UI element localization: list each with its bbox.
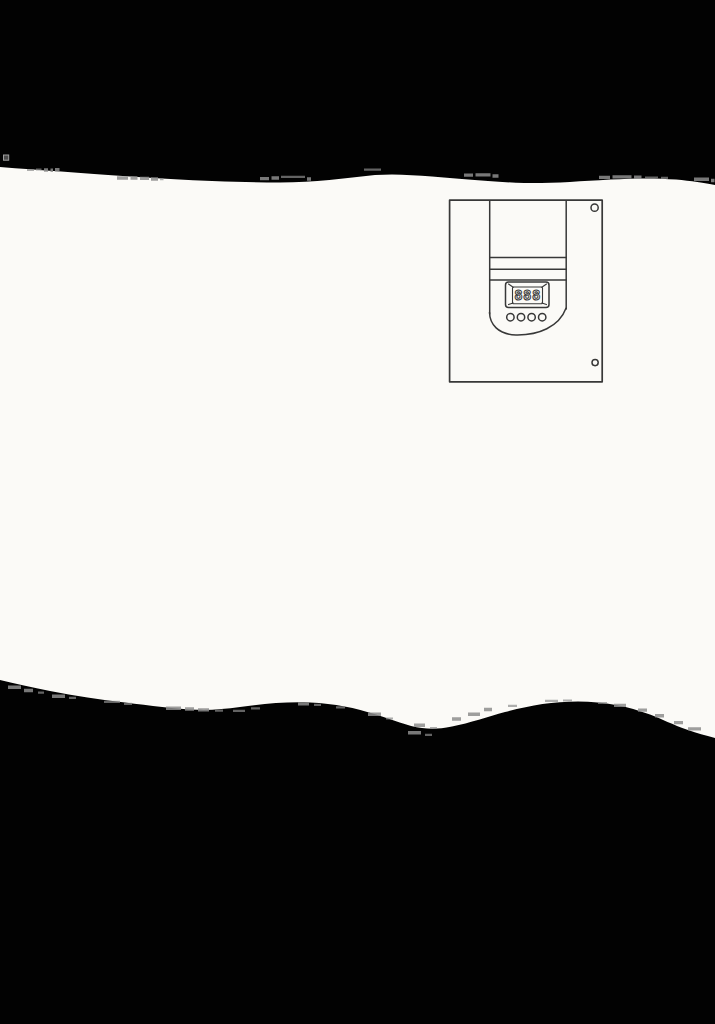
torn-glyph-fragment xyxy=(4,155,9,160)
seven-segment-readout: 888 xyxy=(514,287,541,303)
page-background: 888 xyxy=(0,0,715,1024)
torn-paper-fragment xyxy=(0,167,715,738)
scanned-document: 888 xyxy=(0,0,715,1024)
